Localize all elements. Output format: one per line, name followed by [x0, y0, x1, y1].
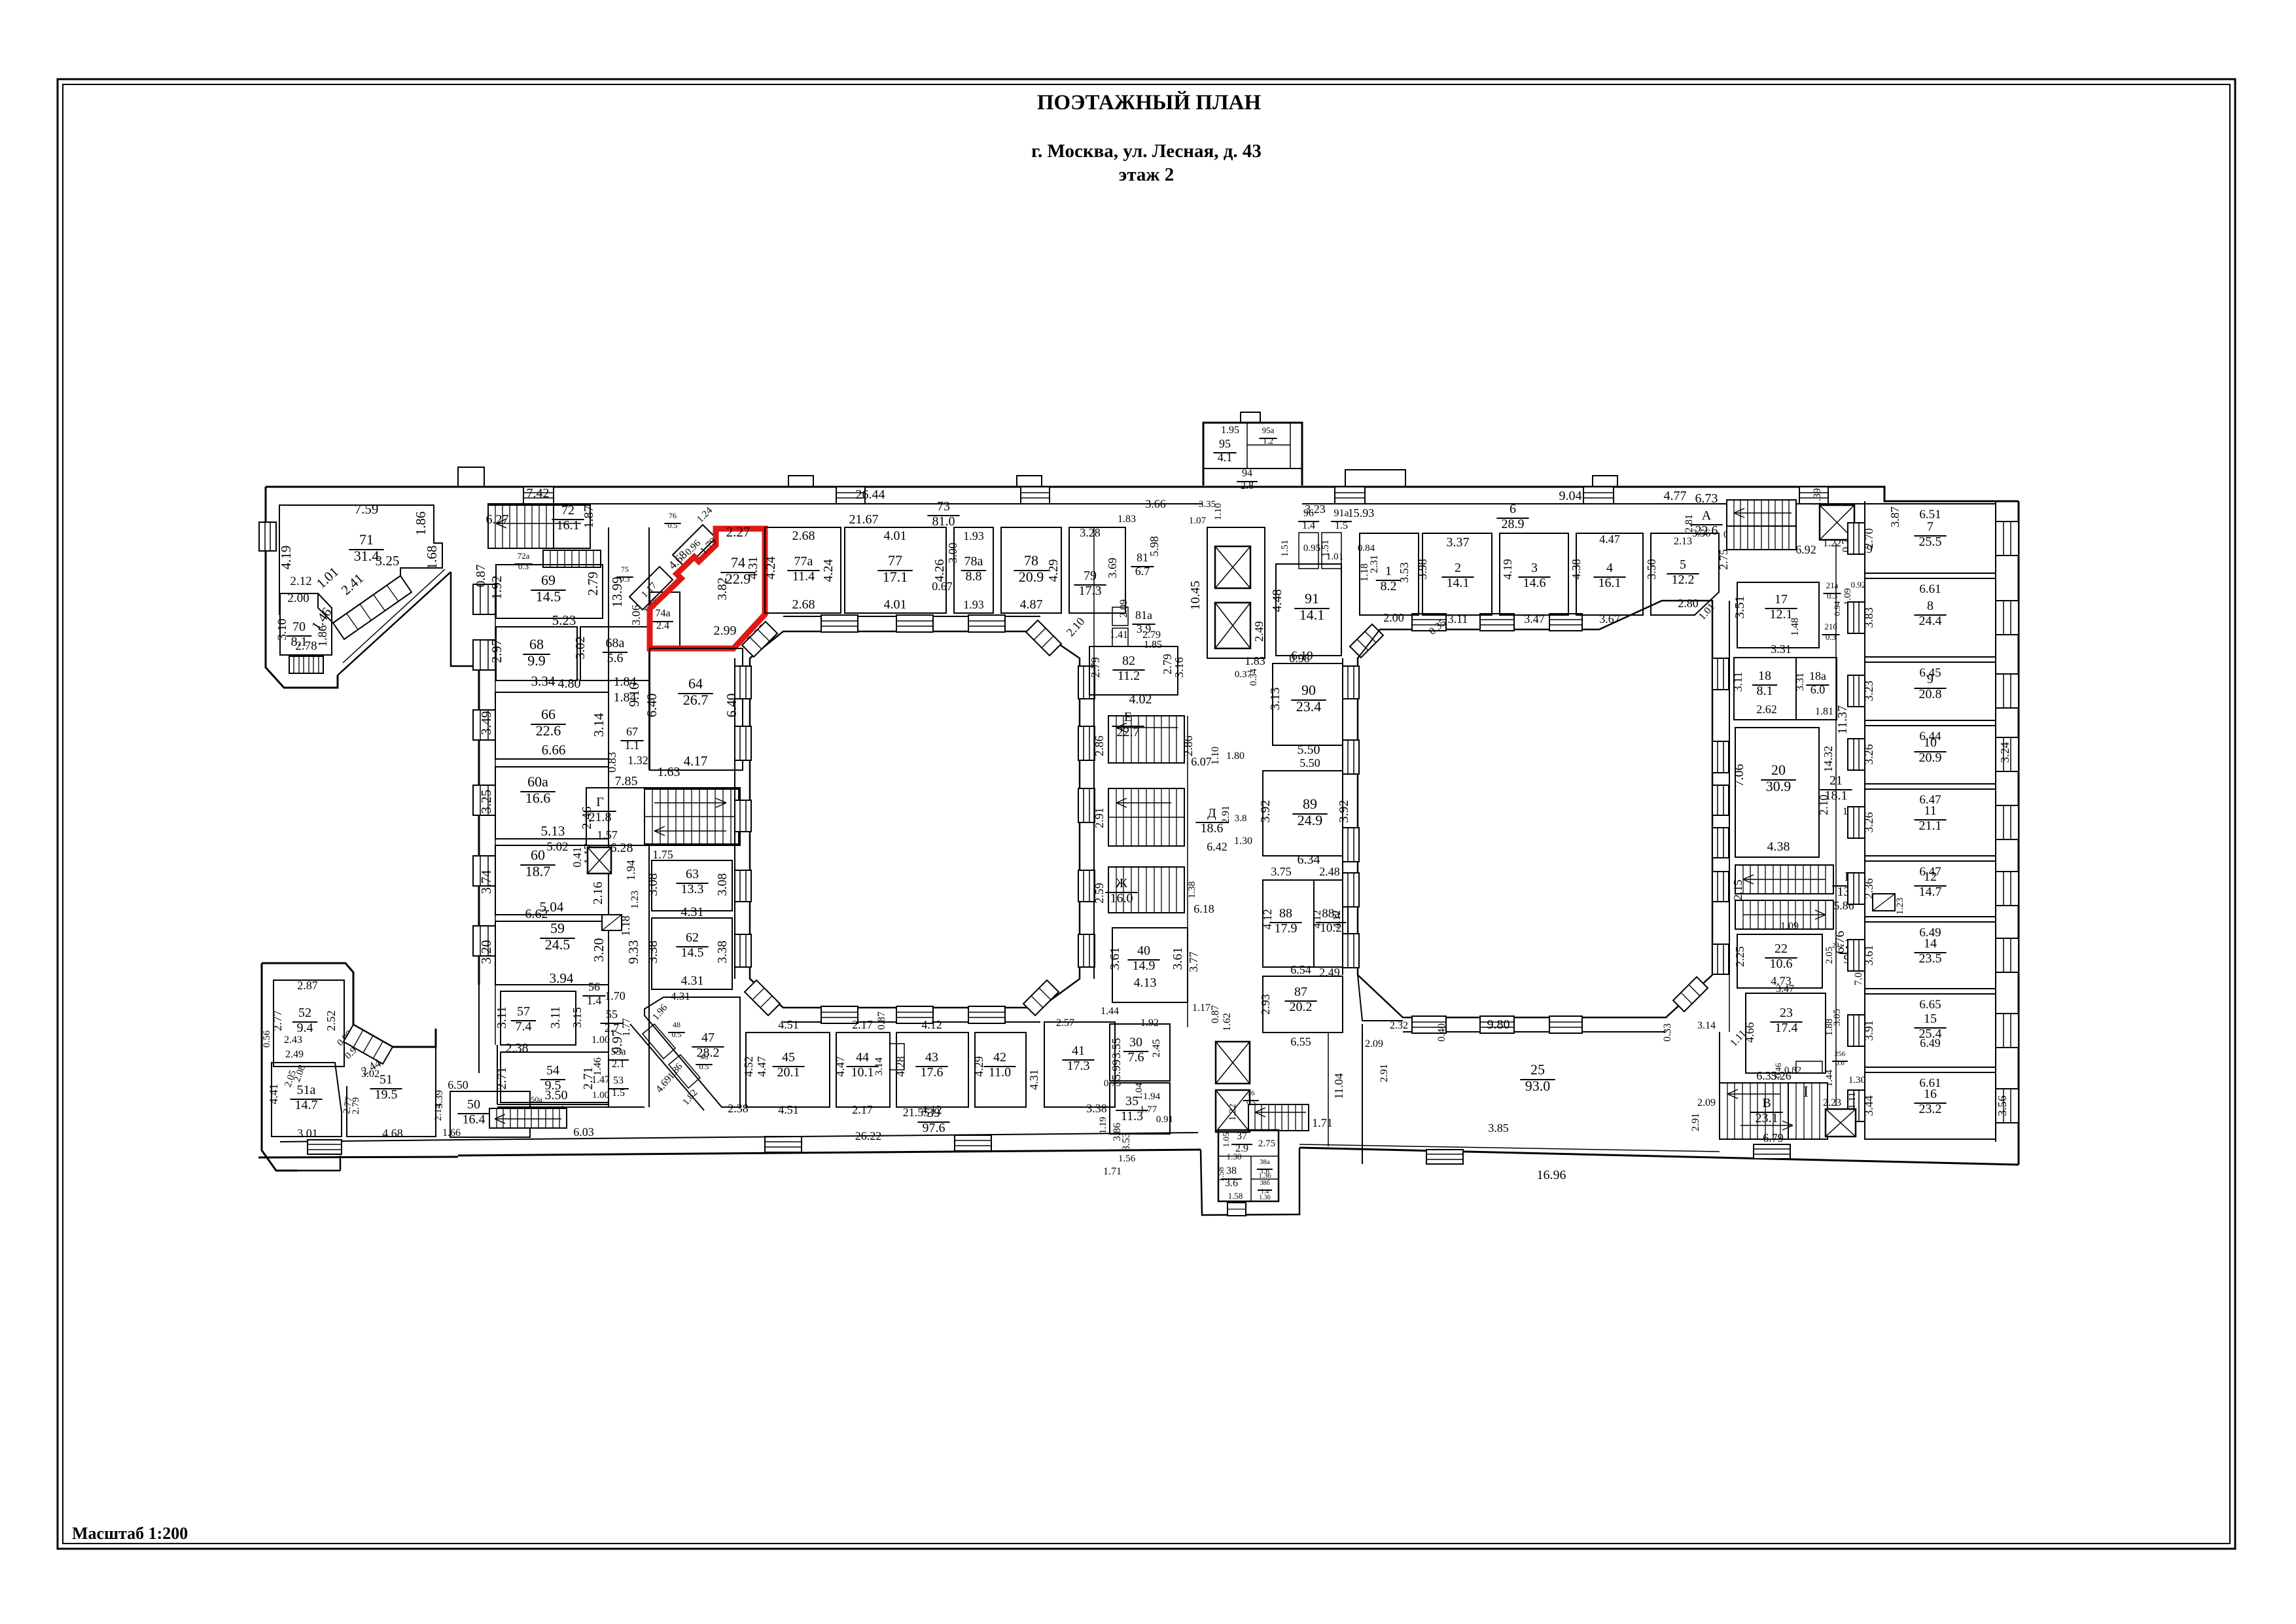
svg-text:3.02: 3.02: [361, 1068, 380, 1080]
svg-text:6.40: 6.40: [644, 694, 660, 718]
svg-text:38б: 38б: [1260, 1180, 1269, 1187]
svg-text:4.52: 4.52: [742, 1056, 755, 1077]
svg-text:1.75: 1.75: [652, 848, 673, 861]
svg-text:3.23: 3.23: [1305, 503, 1326, 516]
svg-text:6.07: 6.07: [1191, 755, 1212, 768]
svg-text:4.80: 4.80: [558, 677, 581, 691]
svg-text:1.4: 1.4: [1302, 520, 1315, 531]
svg-text:3.69: 3.69: [1106, 557, 1119, 578]
svg-text:3.61: 3.61: [1171, 947, 1185, 970]
svg-text:0.3: 0.3: [1826, 632, 1836, 642]
svg-text:1.23: 1.23: [1895, 898, 1905, 915]
svg-text:3.38: 3.38: [715, 941, 730, 964]
svg-text:4: 4: [1606, 561, 1613, 575]
svg-text:2.38: 2.38: [728, 1102, 749, 1115]
svg-text:45: 45: [782, 1050, 795, 1065]
svg-text:6.49: 6.49: [1919, 926, 1941, 940]
svg-text:5.99: 5.99: [1110, 1059, 1123, 1080]
svg-text:2.86: 2.86: [1182, 735, 1195, 756]
svg-text:3.50: 3.50: [545, 1088, 568, 1103]
svg-text:В: В: [1762, 1096, 1771, 1110]
svg-text:14.1: 14.1: [1299, 607, 1325, 623]
svg-text:4.13: 4.13: [1134, 976, 1157, 990]
svg-text:1.84: 1.84: [614, 690, 637, 705]
svg-text:2.1: 2.1: [612, 1059, 625, 1070]
svg-text:24.4: 24.4: [1919, 614, 1942, 628]
svg-text:0.87: 0.87: [474, 565, 488, 588]
svg-text:66: 66: [541, 706, 556, 722]
svg-text:79: 79: [1084, 569, 1097, 583]
svg-text:18a: 18a: [1809, 669, 1826, 682]
svg-text:4.24: 4.24: [764, 557, 778, 580]
svg-text:44: 44: [856, 1050, 869, 1065]
svg-text:1.36: 1.36: [1258, 1172, 1271, 1180]
svg-text:69: 69: [541, 572, 556, 588]
svg-text:50a: 50a: [531, 1095, 542, 1104]
svg-text:256: 256: [1835, 1050, 1846, 1058]
svg-text:3.56: 3.56: [1996, 1095, 2009, 1116]
svg-text:11.4: 11.4: [792, 569, 815, 584]
svg-text:74a: 74a: [655, 608, 670, 619]
svg-text:0.75: 0.75: [1104, 1078, 1121, 1089]
svg-text:3.75: 3.75: [1271, 865, 1292, 878]
svg-text:4.12: 4.12: [1312, 910, 1323, 928]
svg-text:2: 2: [1455, 561, 1461, 575]
svg-text:3.00: 3.00: [946, 542, 959, 563]
svg-text:10.6: 10.6: [1770, 957, 1793, 971]
svg-text:2.4: 2.4: [656, 620, 669, 631]
svg-text:2.68: 2.68: [792, 597, 815, 612]
svg-text:17.6: 17.6: [921, 1065, 944, 1080]
svg-text:72a: 72a: [518, 551, 530, 561]
svg-text:19.5: 19.5: [375, 1087, 398, 1102]
svg-text:21.1: 21.1: [1919, 819, 1942, 833]
svg-text:ПОЭТАЖНЫЙ ПЛАН: ПОЭТАЖНЫЙ ПЛАН: [1037, 90, 1262, 115]
svg-text:1.80: 1.80: [1226, 750, 1245, 762]
svg-text:4.31: 4.31: [681, 974, 704, 988]
svg-text:4.24: 4.24: [821, 559, 836, 582]
svg-text:1.18: 1.18: [619, 915, 632, 936]
svg-text:40: 40: [1137, 944, 1150, 958]
svg-text:7.59: 7.59: [355, 501, 379, 517]
svg-text:3.16: 3.16: [1173, 657, 1186, 678]
svg-text:2.13: 2.13: [1674, 536, 1692, 547]
svg-text:0.5: 0.5: [672, 1030, 682, 1039]
svg-text:77: 77: [888, 552, 902, 569]
svg-text:г. Москва, ул. Лесная, д. 43: г. Москва, ул. Лесная, д. 43: [1031, 141, 1262, 162]
svg-text:0.46: 0.46: [1773, 1063, 1783, 1078]
svg-text:3.25: 3.25: [376, 553, 400, 569]
svg-text:6.45: 6.45: [1919, 666, 1941, 680]
svg-text:5.50: 5.50: [1298, 743, 1320, 757]
svg-text:3.92: 3.92: [1337, 800, 1351, 823]
svg-text:0.40: 0.40: [1436, 1023, 1447, 1042]
svg-text:3.38: 3.38: [1086, 1102, 1107, 1115]
svg-text:5: 5: [1680, 557, 1686, 572]
svg-text:4.87: 4.87: [1020, 597, 1043, 612]
svg-text:4.48: 4.48: [1270, 590, 1284, 612]
svg-text:0.95: 0.95: [1303, 543, 1320, 554]
svg-text:53: 53: [613, 1075, 624, 1086]
svg-text:1.93: 1.93: [963, 598, 984, 611]
svg-text:2.57: 2.57: [1056, 1017, 1074, 1029]
svg-text:1.07: 1.07: [1189, 516, 1207, 526]
svg-text:6.66: 6.66: [542, 742, 566, 758]
svg-text:2.43: 2.43: [284, 1034, 302, 1046]
svg-text:94: 94: [1242, 468, 1252, 479]
svg-text:3.50: 3.50: [1645, 559, 1658, 580]
svg-text:26.44: 26.44: [856, 487, 885, 502]
svg-text:6.79: 6.79: [1763, 1131, 1784, 1144]
svg-text:6.55: 6.55: [1290, 1035, 1311, 1048]
svg-text:0.56: 0.56: [262, 1030, 272, 1048]
svg-text:3.67: 3.67: [1599, 612, 1620, 626]
svg-text:0.67: 0.67: [932, 580, 953, 593]
svg-text:2.46: 2.46: [580, 807, 594, 830]
svg-text:1.44: 1.44: [1101, 1006, 1119, 1017]
svg-text:3.15: 3.15: [571, 1007, 584, 1028]
svg-text:0.87: 0.87: [1210, 1005, 1221, 1023]
svg-text:4.12: 4.12: [1261, 909, 1274, 930]
svg-text:2.8: 2.8: [1241, 480, 1254, 491]
svg-text:2.31: 2.31: [1369, 555, 1380, 573]
svg-text:21.67: 21.67: [849, 512, 879, 527]
svg-text:1.32: 1.32: [627, 754, 648, 767]
svg-text:2.93: 2.93: [1259, 994, 1272, 1015]
svg-text:4.47: 4.47: [1599, 533, 1620, 546]
svg-text:3.8: 3.8: [1235, 813, 1247, 824]
svg-text:1.09: 1.09: [1780, 921, 1799, 932]
svg-text:3.98: 3.98: [1416, 559, 1429, 580]
svg-text:3.31: 3.31: [1771, 643, 1792, 656]
svg-text:68a: 68a: [606, 636, 625, 650]
svg-text:1.17: 1.17: [1192, 1002, 1210, 1014]
svg-text:10.1: 10.1: [851, 1065, 874, 1080]
svg-text:1.68: 1.68: [424, 546, 440, 570]
svg-text:6.92: 6.92: [1795, 543, 1816, 556]
svg-text:2.16: 2.16: [591, 882, 605, 905]
svg-text:6.62: 6.62: [525, 907, 548, 921]
svg-text:0.5: 0.5: [668, 521, 678, 530]
svg-text:18: 18: [1758, 669, 1771, 683]
svg-text:1.83: 1.83: [1245, 654, 1265, 667]
svg-text:55: 55: [606, 1008, 618, 1021]
svg-text:2.99: 2.99: [714, 624, 737, 638]
svg-text:59: 59: [550, 920, 565, 936]
svg-text:4.29: 4.29: [972, 1056, 985, 1077]
svg-text:2.09: 2.09: [1697, 1097, 1716, 1108]
svg-text:1.95: 1.95: [1221, 425, 1239, 436]
svg-text:4.01: 4.01: [884, 597, 907, 612]
svg-text:26.7: 26.7: [683, 692, 709, 708]
svg-text:4.19: 4.19: [1501, 559, 1514, 580]
svg-text:1.83: 1.83: [1118, 514, 1136, 525]
svg-text:4.31: 4.31: [681, 905, 704, 919]
svg-text:16.4: 16.4: [463, 1112, 486, 1127]
svg-text:95a: 95a: [1262, 425, 1275, 435]
svg-text:3.34: 3.34: [531, 673, 556, 689]
svg-text:Масштаб 1:200: Масштаб 1:200: [72, 1524, 188, 1543]
svg-text:67: 67: [626, 725, 638, 738]
svg-text:8.1: 8.1: [1757, 684, 1773, 698]
svg-text:6.19: 6.19: [1291, 649, 1313, 663]
svg-text:1.1: 1.1: [625, 739, 640, 752]
svg-text:1.38: 1.38: [1187, 881, 1197, 898]
svg-text:2.86: 2.86: [1093, 735, 1106, 756]
svg-text:0.6: 0.6: [1835, 1059, 1845, 1067]
svg-text:1.86: 1.86: [316, 625, 330, 646]
svg-text:1.30: 1.30: [1848, 1075, 1865, 1086]
svg-text:76: 76: [669, 511, 677, 520]
svg-text:23: 23: [1780, 1006, 1793, 1020]
svg-text:3.77: 3.77: [1187, 951, 1200, 972]
svg-text:14.32: 14.32: [1822, 746, 1835, 773]
svg-text:3.53: 3.53: [1398, 562, 1411, 583]
svg-text:3.28: 3.28: [1080, 526, 1101, 539]
svg-text:1.39: 1.39: [1812, 488, 1823, 506]
svg-text:6.65: 6.65: [1919, 998, 1941, 1012]
svg-text:1.66: 1.66: [442, 1127, 461, 1139]
svg-text:20.9: 20.9: [1019, 569, 1044, 585]
svg-text:2.87: 2.87: [297, 979, 318, 992]
svg-text:4.19: 4.19: [278, 546, 294, 570]
svg-text:68: 68: [529, 636, 544, 652]
svg-text:20.8: 20.8: [1919, 687, 1942, 701]
svg-text:3.61: 3.61: [1108, 947, 1122, 970]
svg-text:Г: Г: [596, 795, 604, 809]
svg-text:17.9: 17.9: [1275, 921, 1298, 936]
svg-text:14.9: 14.9: [1133, 959, 1156, 973]
svg-text:6.50: 6.50: [448, 1078, 468, 1091]
svg-text:5.13: 5.13: [541, 823, 565, 839]
svg-text:47: 47: [701, 1031, 715, 1045]
svg-text:9.80: 9.80: [1487, 1017, 1510, 1032]
svg-text:2.91: 2.91: [1690, 1113, 1701, 1131]
svg-text:60: 60: [531, 847, 545, 863]
svg-text:1: 1: [1385, 564, 1392, 578]
svg-text:4.38: 4.38: [1767, 839, 1790, 854]
svg-text:91: 91: [1305, 590, 1319, 607]
svg-text:28.9: 28.9: [1502, 517, 1525, 531]
svg-text:2.23: 2.23: [1823, 1097, 1841, 1108]
svg-text:22: 22: [1775, 942, 1788, 956]
svg-text:37: 37: [1237, 1131, 1247, 1142]
svg-text:3.10: 3.10: [275, 618, 289, 640]
svg-text:6.61: 6.61: [1919, 1076, 1941, 1090]
svg-text:78: 78: [1024, 552, 1038, 569]
svg-text:2.81: 2.81: [1684, 514, 1695, 533]
svg-text:11.37: 11.37: [1835, 705, 1850, 734]
svg-text:6.28: 6.28: [610, 841, 633, 855]
svg-text:2.91: 2.91: [1379, 1064, 1390, 1082]
svg-text:3.53: 3.53: [1121, 1133, 1132, 1151]
svg-text:Ж: Ж: [1116, 876, 1127, 891]
svg-text:0.3: 0.3: [518, 561, 529, 571]
svg-text:54: 54: [546, 1063, 559, 1078]
svg-text:1.19: 1.19: [1098, 1117, 1108, 1134]
svg-text:30.9: 30.9: [1766, 778, 1792, 794]
svg-text:2.49: 2.49: [285, 1049, 304, 1060]
svg-text:14.6: 14.6: [1523, 576, 1546, 590]
svg-text:3.37: 3.37: [1447, 535, 1470, 550]
svg-text:4.31: 4.31: [746, 557, 760, 580]
svg-text:3.51: 3.51: [1733, 596, 1747, 619]
svg-text:17.1: 17.1: [883, 569, 908, 585]
svg-text:97.6: 97.6: [923, 1121, 945, 1135]
svg-text:53a: 53a: [610, 1046, 626, 1057]
svg-text:4.28: 4.28: [894, 1056, 907, 1077]
svg-text:88: 88: [1279, 906, 1292, 921]
svg-text:36: 36: [1248, 1089, 1256, 1097]
svg-text:1.86: 1.86: [413, 512, 429, 536]
svg-text:78a: 78a: [964, 554, 983, 569]
svg-text:81.0: 81.0: [932, 514, 955, 529]
svg-text:5.50: 5.50: [1299, 756, 1320, 769]
svg-text:3.01: 3.01: [297, 1127, 318, 1140]
svg-text:1.22: 1.22: [1227, 1104, 1238, 1121]
svg-text:9.4: 9.4: [297, 1021, 313, 1035]
svg-text:1.94: 1.94: [1143, 1091, 1161, 1102]
svg-text:16.96: 16.96: [1537, 1168, 1566, 1182]
svg-text:1.71: 1.71: [1103, 1166, 1122, 1177]
svg-text:23.5: 23.5: [1919, 951, 1942, 966]
svg-text:89: 89: [1303, 796, 1317, 812]
svg-text:60a: 60a: [527, 773, 548, 790]
svg-text:95: 95: [1219, 437, 1231, 450]
svg-text:71: 71: [359, 531, 374, 548]
svg-text:15.93: 15.93: [1348, 506, 1375, 520]
svg-text:1.87: 1.87: [582, 506, 596, 529]
svg-text:6.51: 6.51: [1919, 508, 1941, 521]
svg-text:3.08: 3.08: [715, 874, 730, 896]
svg-text:20: 20: [1771, 762, 1786, 778]
svg-text:8: 8: [1927, 599, 1934, 613]
svg-text:6.18: 6.18: [1193, 902, 1214, 915]
svg-text:3.08: 3.08: [646, 874, 660, 896]
svg-text:17.3: 17.3: [1067, 1059, 1090, 1073]
svg-text:57: 57: [517, 1004, 530, 1019]
svg-text:4.12: 4.12: [1332, 910, 1343, 928]
svg-text:90: 90: [1301, 682, 1316, 698]
svg-text:3.47: 3.47: [1776, 983, 1794, 995]
svg-text:43: 43: [925, 1050, 938, 1065]
svg-text:7: 7: [1927, 520, 1934, 534]
svg-text:3.20: 3.20: [478, 940, 494, 964]
svg-text:20.1: 20.1: [777, 1065, 800, 1080]
svg-text:0.92: 0.92: [1851, 580, 1866, 590]
svg-text:2.62: 2.62: [1756, 703, 1777, 716]
svg-text:70: 70: [292, 620, 306, 634]
svg-text:2.49: 2.49: [1252, 621, 1265, 642]
svg-text:1.56: 1.56: [1118, 1154, 1136, 1164]
svg-text:51a: 51a: [297, 1083, 316, 1097]
svg-text:1.93: 1.93: [963, 529, 984, 542]
svg-text:6.27: 6.27: [486, 512, 509, 527]
svg-text:1.57: 1.57: [597, 828, 618, 841]
svg-text:0.84: 0.84: [1358, 543, 1375, 554]
svg-text:1.62: 1.62: [1222, 1013, 1233, 1031]
svg-text:1.92: 1.92: [489, 576, 504, 600]
svg-text:0.37: 0.37: [1235, 669, 1252, 680]
svg-text:3.11: 3.11: [1448, 612, 1468, 626]
svg-text:3.6: 3.6: [1225, 1178, 1238, 1189]
svg-text:18.7: 18.7: [525, 863, 551, 879]
svg-text:72: 72: [561, 503, 574, 518]
svg-text:11.0: 11.0: [989, 1065, 1011, 1080]
svg-text:0.87: 0.87: [876, 1012, 887, 1030]
svg-text:1.46: 1.46: [592, 1057, 603, 1076]
svg-text:Д: Д: [1207, 806, 1216, 821]
svg-text:3.47: 3.47: [1524, 612, 1545, 626]
svg-text:1.63: 1.63: [658, 765, 680, 779]
svg-text:74: 74: [731, 554, 745, 571]
svg-text:82: 82: [1122, 654, 1135, 668]
svg-text:24.9: 24.9: [1298, 812, 1323, 828]
svg-text:1.71: 1.71: [1312, 1116, 1333, 1129]
svg-text:0.33: 0.33: [1662, 1023, 1673, 1042]
svg-text:17: 17: [1775, 592, 1788, 607]
svg-text:16.6: 16.6: [525, 790, 551, 806]
svg-text:6.44: 6.44: [1919, 730, 1941, 743]
svg-text:91a: 91a: [1333, 508, 1349, 519]
svg-text:2.45: 2.45: [1151, 1039, 1162, 1057]
svg-text:81: 81: [1137, 551, 1148, 564]
svg-text:2.79: 2.79: [585, 572, 601, 596]
svg-text:1.30: 1.30: [1234, 836, 1252, 847]
svg-text:0.83: 0.83: [605, 752, 618, 773]
svg-text:56: 56: [588, 980, 600, 993]
svg-text:1.05: 1.05: [1221, 1133, 1231, 1148]
svg-text:16.0: 16.0: [1110, 891, 1133, 906]
svg-text:1.84: 1.84: [614, 675, 637, 689]
svg-text:14.7: 14.7: [1919, 885, 1942, 899]
svg-text:3.02: 3.02: [573, 637, 588, 660]
svg-text:24.5: 24.5: [545, 936, 571, 953]
svg-text:2.7: 2.7: [605, 1021, 620, 1034]
svg-text:0.94: 0.94: [1832, 601, 1842, 616]
svg-text:5.98: 5.98: [1148, 536, 1161, 557]
svg-text:4.17: 4.17: [684, 753, 708, 769]
svg-text:41: 41: [1072, 1044, 1085, 1058]
svg-text:6.34: 6.34: [1298, 853, 1320, 867]
svg-text:14.1: 14.1: [1447, 576, 1470, 590]
svg-text:3.13: 3.13: [1268, 688, 1282, 711]
svg-text:6.47: 6.47: [1919, 865, 1941, 879]
svg-text:2.79: 2.79: [351, 1097, 361, 1114]
svg-text:0.91: 0.91: [1156, 1114, 1173, 1125]
svg-text:38: 38: [1226, 1165, 1237, 1176]
svg-text:38а: 38а: [1260, 1158, 1270, 1166]
svg-text:23.2: 23.2: [1919, 1102, 1942, 1116]
svg-text:2.48: 2.48: [1319, 865, 1340, 878]
svg-text:1.00: 1.00: [592, 1090, 609, 1101]
svg-text:3.66: 3.66: [1145, 497, 1166, 510]
svg-text:9.9: 9.9: [527, 652, 546, 669]
svg-text:4.51: 4.51: [778, 1018, 799, 1031]
svg-text:73: 73: [937, 499, 950, 514]
svg-text:4.02: 4.02: [1129, 692, 1152, 707]
svg-text:1.36: 1.36: [1259, 1194, 1271, 1201]
svg-text:1.58: 1.58: [1228, 1191, 1243, 1201]
svg-text:2.15: 2.15: [1731, 879, 1744, 900]
svg-text:16.1: 16.1: [557, 518, 580, 533]
svg-text:3.20: 3.20: [591, 938, 607, 962]
svg-text:62: 62: [686, 930, 699, 945]
svg-text:2.17: 2.17: [852, 1018, 873, 1031]
svg-text:15: 15: [1924, 1012, 1937, 1026]
svg-text:2.32: 2.32: [1390, 1020, 1408, 1031]
svg-text:4.01: 4.01: [884, 529, 907, 543]
